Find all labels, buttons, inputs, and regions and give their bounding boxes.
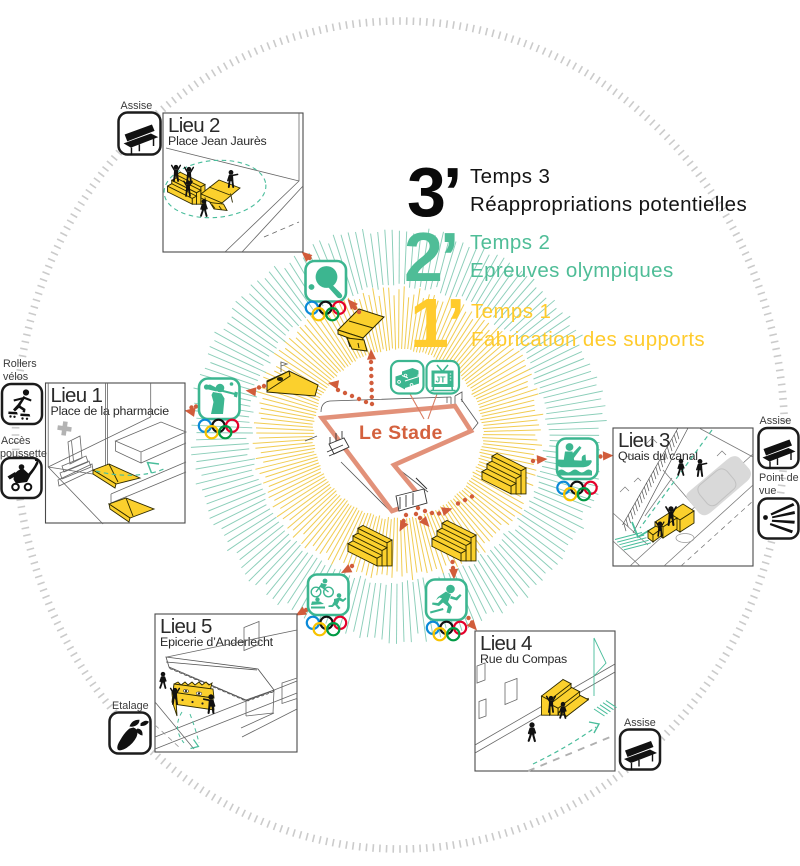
svg-text:Place de la pharmacie: Place de la pharmacie [51, 404, 170, 418]
svg-text:Quais du canal: Quais du canal [618, 449, 698, 463]
svg-text:Accès: Accès [1, 435, 31, 447]
svg-text:Rollers: Rollers [3, 358, 37, 370]
svg-text:Temps 1: Temps 1 [471, 300, 551, 323]
svg-text:JT: JT [436, 375, 447, 385]
svg-text:Etalage: Etalage [112, 700, 149, 712]
svg-text:Rue du Compas: Rue du Compas [480, 652, 567, 666]
svg-text:vue: vue [759, 485, 776, 497]
svg-text:Temps 2: Temps 2 [470, 231, 550, 254]
svg-text:Assise: Assise [760, 415, 792, 427]
svg-text:Temps 3: Temps 3 [470, 165, 550, 188]
svg-text:Fabrication des supports: Fabrication des supports [471, 328, 705, 351]
svg-text:Epreuves olympiques: Epreuves olympiques [470, 259, 674, 282]
svg-text:Assise: Assise [121, 100, 153, 112]
svg-text:Le Stade: Le Stade [359, 422, 443, 444]
svg-text:1’: 1’ [410, 284, 462, 362]
svg-text:Réappropriations potentielles: Réappropriations potentielles [470, 193, 747, 216]
svg-text:Point de: Point de [759, 472, 799, 484]
svg-text:Place Jean Jaurès: Place Jean Jaurès [168, 134, 267, 148]
svg-text:Assise: Assise [624, 717, 656, 729]
svg-text:vélos: vélos [3, 371, 29, 383]
